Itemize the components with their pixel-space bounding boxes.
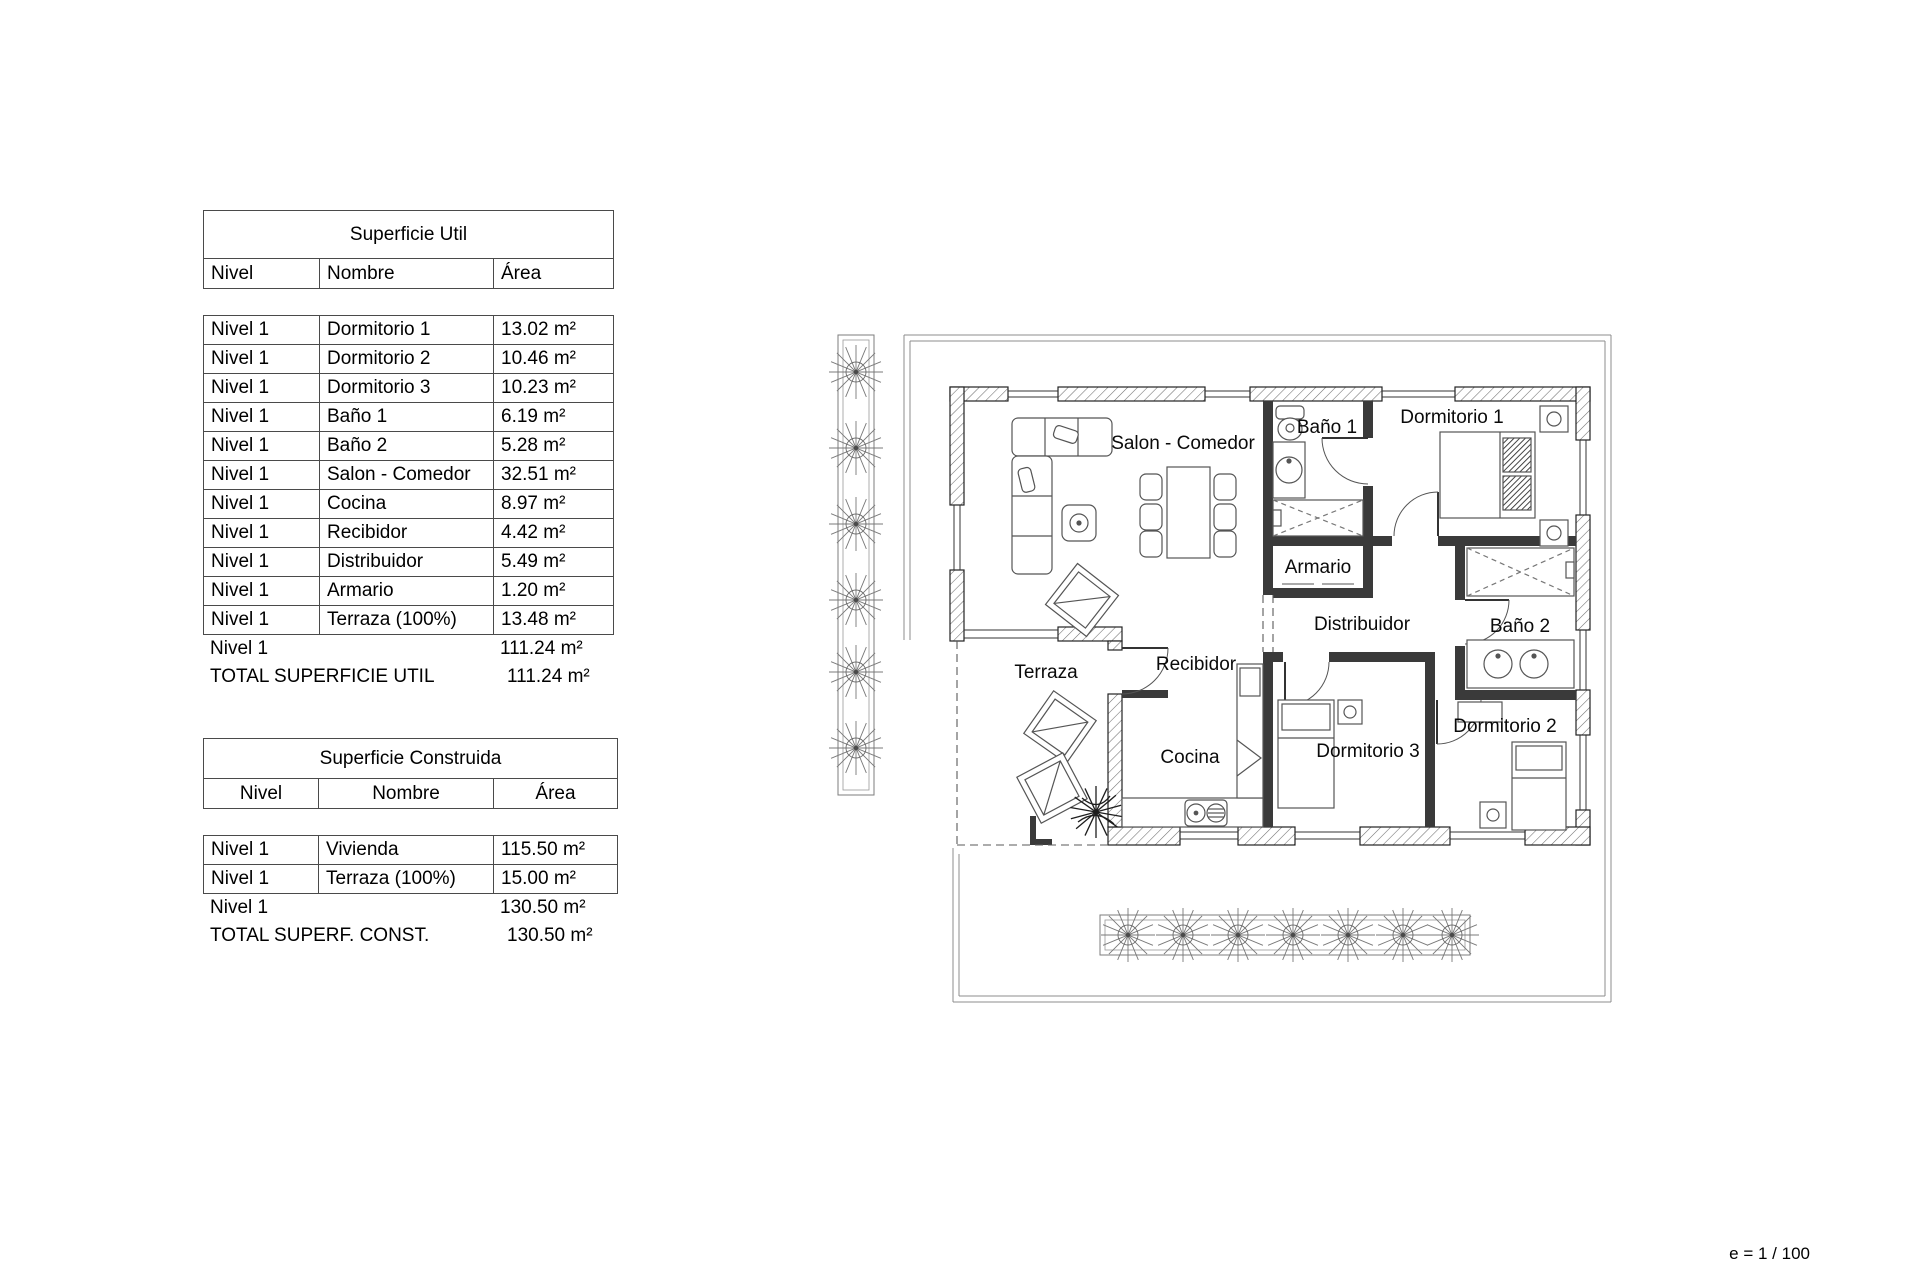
room-label-recibidor: Recibidor <box>1156 654 1237 675</box>
terraza-chair-2 <box>1017 753 1087 823</box>
plan-sheet: { "scale_note": "e = 1 / 100", "tables":… <box>0 0 1920 1280</box>
room-label-dormitorio-2: Dormitorio 2 <box>1453 716 1556 737</box>
sofa <box>1012 418 1112 574</box>
lounge-chair-salon <box>1046 564 1119 637</box>
room-label-distribuidor: Distribuidor <box>1314 614 1411 635</box>
hedge-strip-bottom <box>1100 908 1479 962</box>
room-label-terraza: Terraza <box>1014 662 1078 683</box>
terraza-chair-1 <box>1024 691 1096 763</box>
hedge-strip-left <box>829 335 883 795</box>
room-label-bano-1: Baño 1 <box>1297 417 1357 438</box>
scale-note: e = 1 / 100 <box>1640 1244 1810 1264</box>
room-label-salon-comedor: Salon - Comedor <box>1111 433 1255 454</box>
room-label-cocina: Cocina <box>1160 747 1220 768</box>
dining-table <box>1140 467 1236 558</box>
room-label-dormitorio-3: Dormitorio 3 <box>1316 741 1419 762</box>
floor-plan-svg: Salon - Comedor Baño 1 Dormitorio 1 Arma… <box>0 0 1920 1280</box>
bano1-door <box>1322 438 1368 484</box>
side-table <box>1062 505 1096 541</box>
dormitorio1-door <box>1394 492 1438 536</box>
room-label-armario: Armario <box>1285 557 1352 578</box>
room-label-dormitorio-1: Dormitorio 1 <box>1400 407 1503 428</box>
room-label-bano-2: Baño 2 <box>1490 616 1550 637</box>
